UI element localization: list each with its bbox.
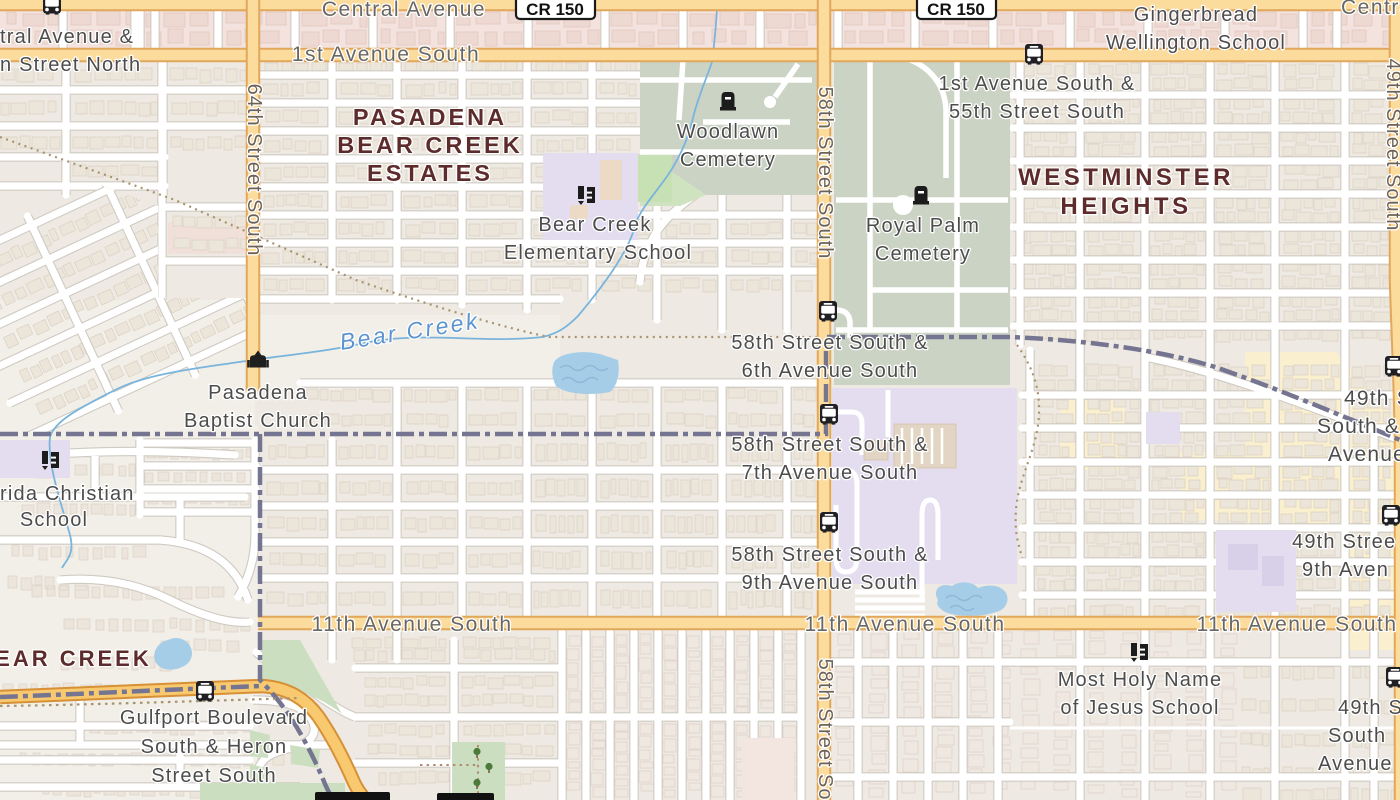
svg-text:CR 150: CR 150 — [927, 0, 985, 19]
svg-text:Gulfport Boulevard: Gulfport Boulevard — [120, 707, 308, 729]
svg-text:ESTATES: ESTATES — [367, 160, 493, 186]
svg-text:tral Avenue &: tral Avenue & — [0, 26, 134, 48]
svg-text:Wellington School: Wellington School — [1106, 32, 1286, 54]
svg-text:49th Street South: 49th Street South — [1382, 59, 1400, 232]
svg-text:Royal Palm: Royal Palm — [866, 215, 980, 237]
svg-text:South & Heron: South & Heron — [141, 736, 288, 758]
svg-text:HEIGHTS: HEIGHTS — [1060, 193, 1191, 220]
svg-text:6th Avenue South: 6th Avenue South — [742, 360, 919, 382]
svg-text:of Jesus School: of Jesus School — [1060, 697, 1219, 719]
svg-text:Central Avenue: Central Avenue — [1341, 0, 1400, 19]
svg-text:49th Stree: 49th Stree — [1292, 531, 1396, 553]
svg-text:PASADENA: PASADENA — [353, 104, 507, 130]
svg-text:WESTMINSTER: WESTMINSTER — [1018, 164, 1234, 191]
svg-text:58th Street South: 58th Street South — [814, 659, 836, 800]
svg-text:Baptist Church: Baptist Church — [184, 410, 332, 432]
svg-text:Avenue: Avenue — [1318, 753, 1393, 775]
svg-text:55th Street South: 55th Street South — [949, 101, 1125, 123]
svg-text:58th Street South &: 58th Street South & — [731, 332, 928, 354]
svg-text:South: South — [1328, 725, 1386, 747]
svg-text:Street South: Street South — [151, 765, 277, 787]
svg-text:58th Street South &: 58th Street South & — [731, 434, 928, 456]
svg-text:64th Street South: 64th Street South — [243, 84, 265, 257]
svg-text:South &: South & — [1317, 415, 1400, 438]
svg-text:School: School — [20, 509, 88, 531]
svg-text:BEAR CREEK: BEAR CREEK — [337, 132, 522, 158]
svg-text:9th Avenue South: 9th Avenue South — [742, 572, 919, 594]
svg-text:Woodlawn: Woodlawn — [677, 121, 780, 143]
svg-text:BEAR CREEK: BEAR CREEK — [0, 646, 152, 671]
svg-text:58th Street South: 58th Street South — [814, 87, 836, 260]
svg-text:CR 150: CR 150 — [526, 0, 584, 19]
svg-text:9th Aven: 9th Aven — [1302, 559, 1389, 581]
svg-text:11th Avenue South: 11th Avenue South — [804, 613, 1005, 636]
svg-text:7th Avenue South: 7th Avenue South — [742, 462, 919, 484]
svg-text:11th Avenue South: 11th Avenue South — [1196, 613, 1397, 636]
svg-text:Elementary School: Elementary School — [504, 242, 692, 264]
svg-text:1st Avenue South: 1st Avenue South — [292, 43, 480, 66]
svg-text:Pasadena: Pasadena — [208, 382, 308, 404]
svg-text:n Street North: n Street North — [0, 54, 141, 76]
svg-text:rida Christian: rida Christian — [0, 483, 135, 505]
svg-text:11th Avenue South: 11th Avenue South — [311, 613, 512, 636]
svg-text:Avenue: Avenue — [1328, 443, 1400, 466]
svg-text:Central Avenue: Central Avenue — [322, 0, 486, 21]
svg-text:Cemetery: Cemetery — [680, 149, 776, 171]
svg-text:Bear Creek: Bear Creek — [538, 214, 651, 236]
svg-text:49th S: 49th S — [1344, 387, 1400, 410]
svg-text:58th Street South &: 58th Street South & — [731, 544, 928, 566]
svg-text:1st Avenue South &: 1st Avenue South & — [939, 73, 1136, 95]
svg-text:Cemetery: Cemetery — [875, 243, 971, 265]
svg-text:Most Holy Name: Most Holy Name — [1058, 669, 1223, 691]
svg-text:Gingerbread: Gingerbread — [1134, 4, 1258, 26]
svg-text:49th S: 49th S — [1338, 697, 1400, 719]
